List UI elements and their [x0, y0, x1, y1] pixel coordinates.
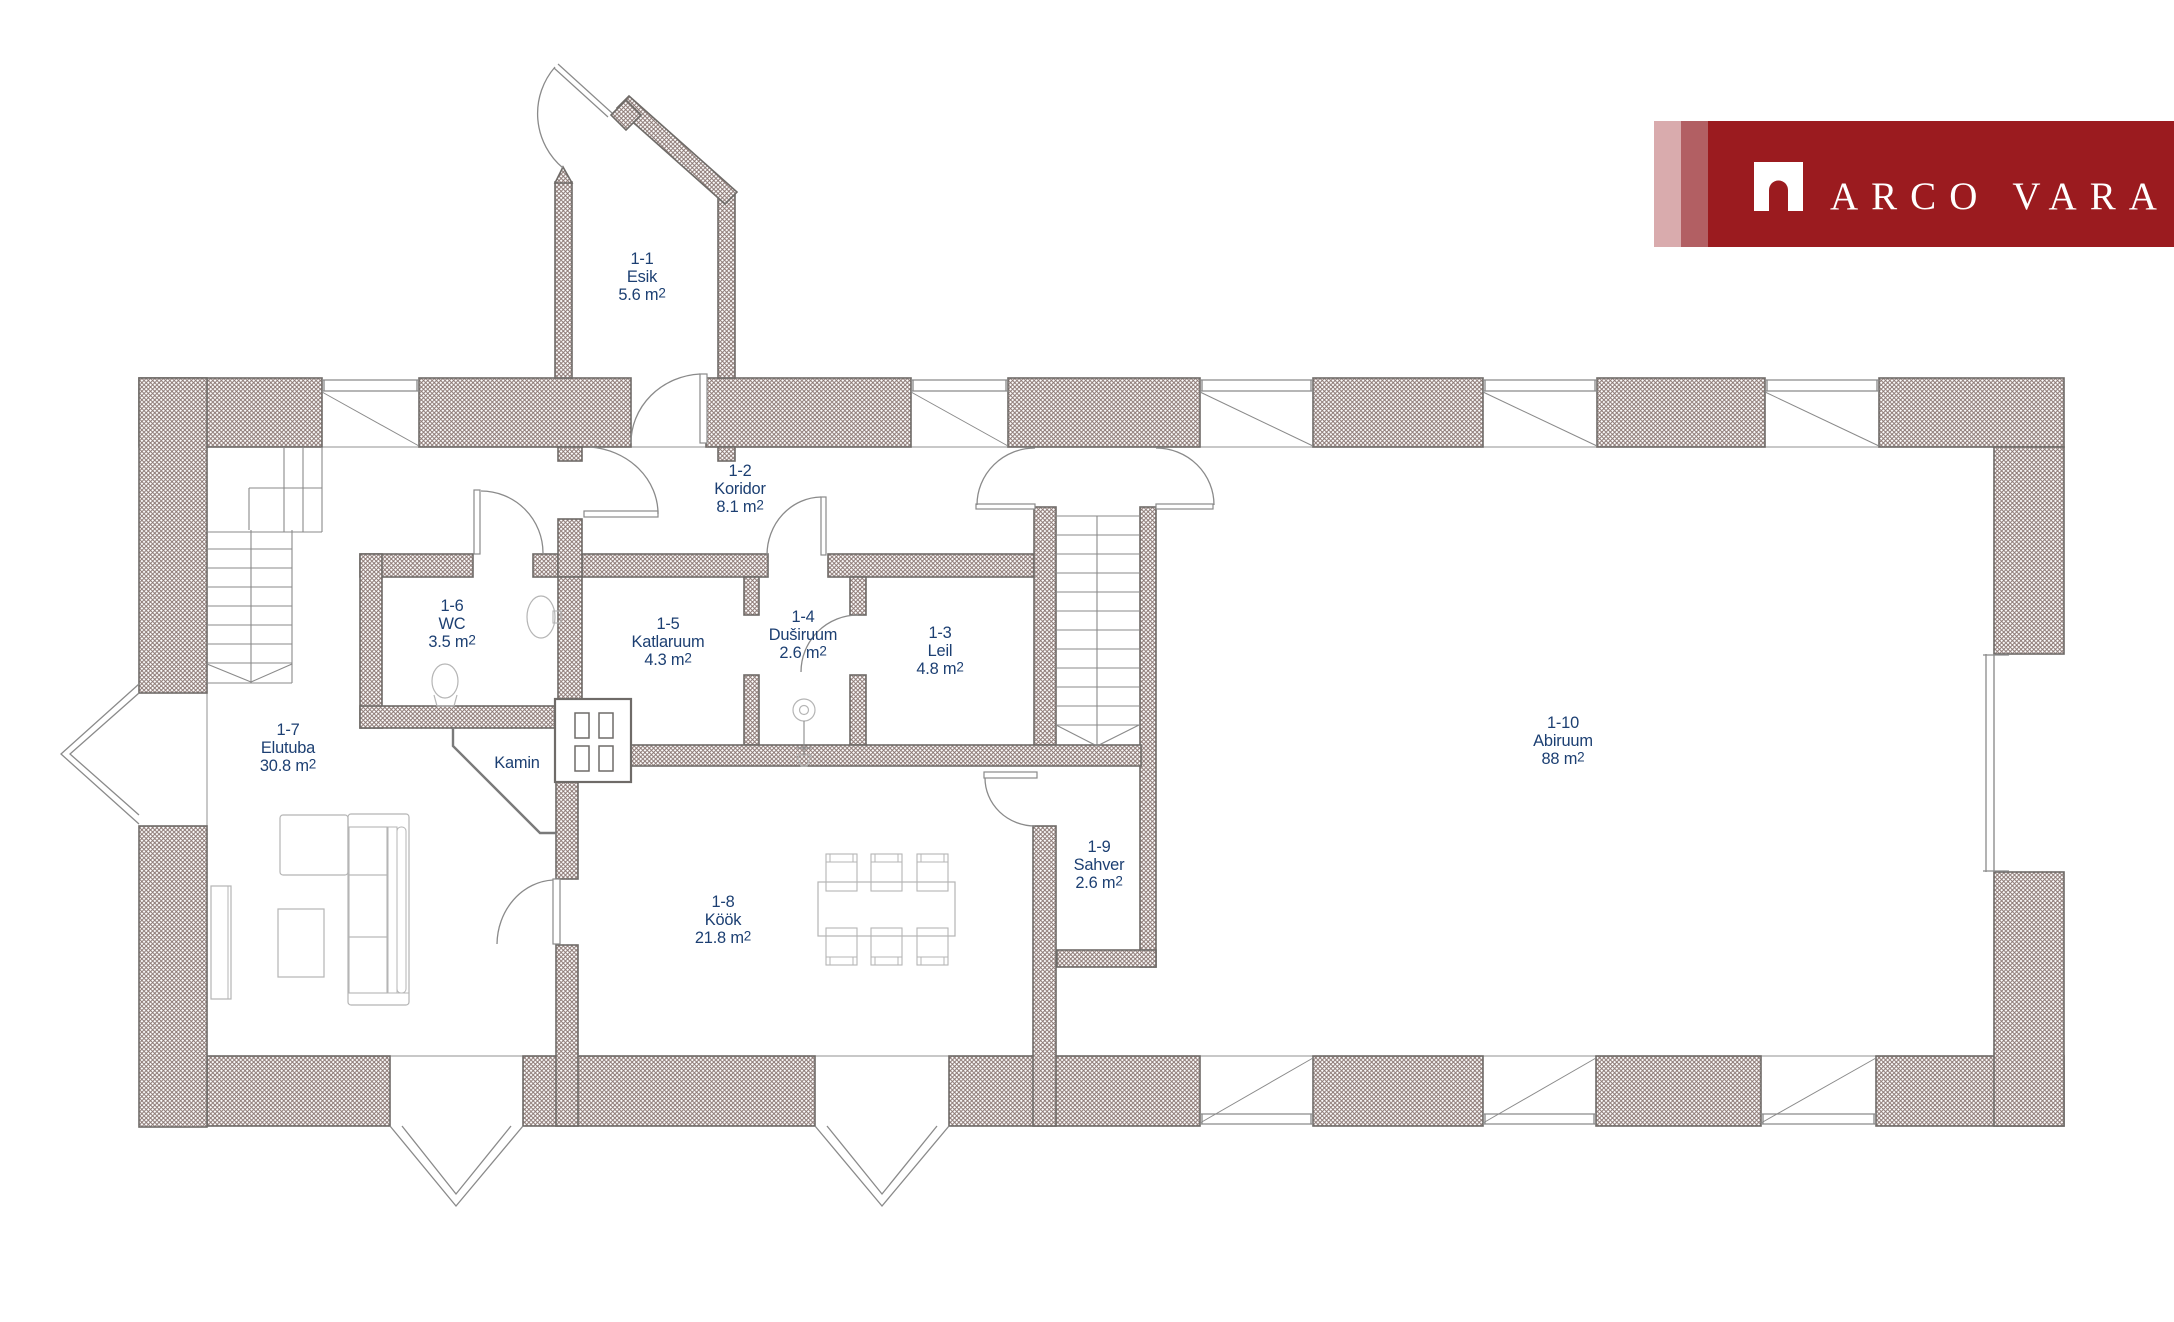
svg-text:1-6: 1-6	[440, 597, 463, 615]
svg-text:1-2: 1-2	[728, 462, 751, 480]
svg-text:1-4: 1-4	[791, 608, 814, 626]
svg-text:Duširuum: Duširuum	[769, 626, 838, 644]
svg-text:Sahver: Sahver	[1074, 856, 1125, 874]
svg-text:Kamin: Kamin	[494, 754, 540, 772]
svg-text:21.8 m2: 21.8 m2	[695, 928, 751, 947]
svg-text:1-8: 1-8	[711, 893, 734, 911]
svg-text:30.8 m2: 30.8 m2	[260, 756, 316, 775]
svg-text:WC: WC	[439, 615, 466, 633]
svg-text:Leil: Leil	[928, 642, 953, 660]
svg-text:1-7: 1-7	[276, 721, 299, 739]
svg-text:Abiruum: Abiruum	[1533, 732, 1593, 750]
svg-text:1-1: 1-1	[630, 250, 653, 268]
svg-text:1-3: 1-3	[928, 624, 951, 642]
svg-text:Koridor: Koridor	[714, 480, 766, 498]
svg-text:1-9: 1-9	[1087, 838, 1110, 856]
svg-text:ARCO VARA: ARCO VARA	[1830, 175, 2170, 218]
svg-text:Elutuba: Elutuba	[261, 739, 316, 757]
svg-text:Köök: Köök	[705, 911, 743, 929]
svg-text:Esik: Esik	[627, 268, 658, 286]
svg-text:1-10: 1-10	[1547, 714, 1579, 732]
svg-text:1-5: 1-5	[656, 615, 679, 633]
svg-text:Katlaruum: Katlaruum	[632, 633, 705, 651]
